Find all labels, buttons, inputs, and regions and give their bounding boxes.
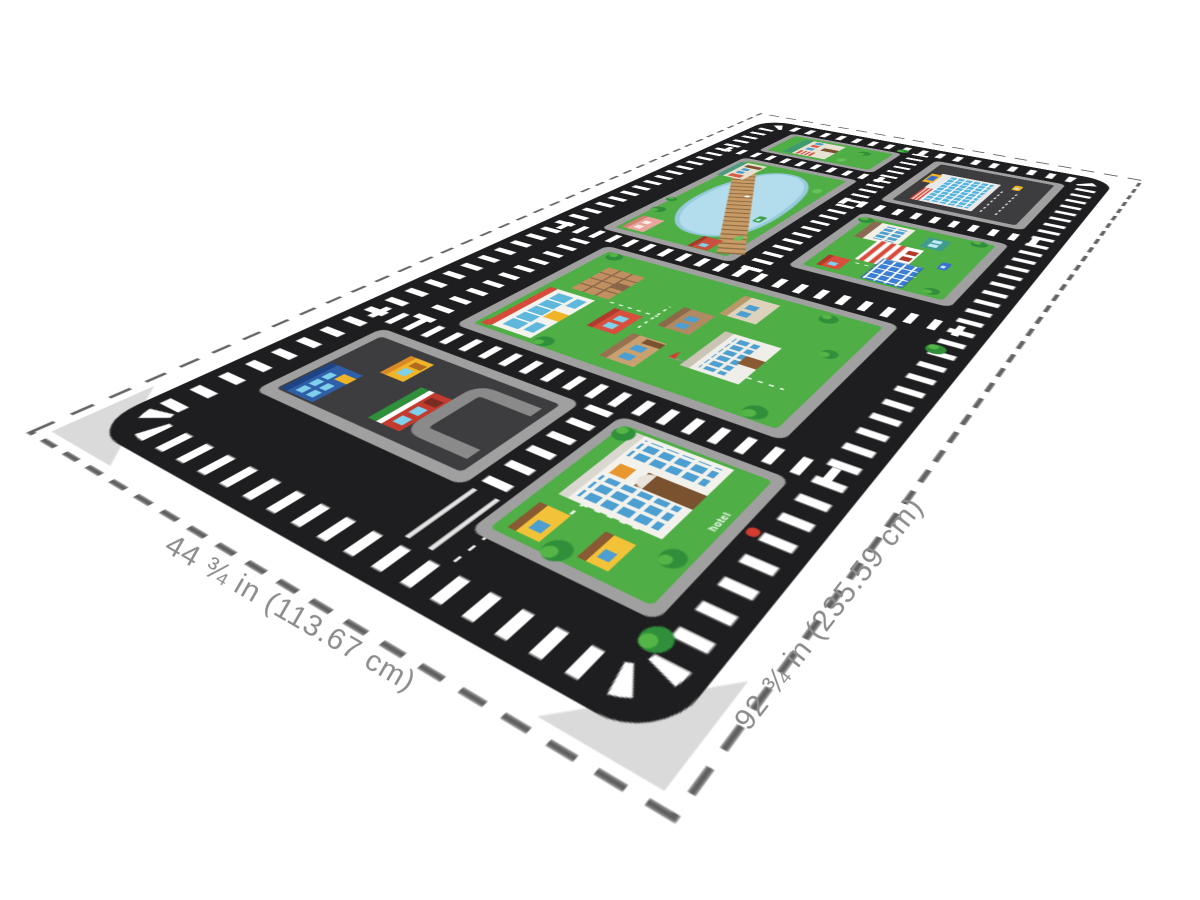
- play-mat-graphic: hotel: [11, 111, 1150, 843]
- play-mat-3d-wrapper: hotel: [11, 111, 1150, 843]
- product-image-stage: hotel: [0, 0, 1200, 900]
